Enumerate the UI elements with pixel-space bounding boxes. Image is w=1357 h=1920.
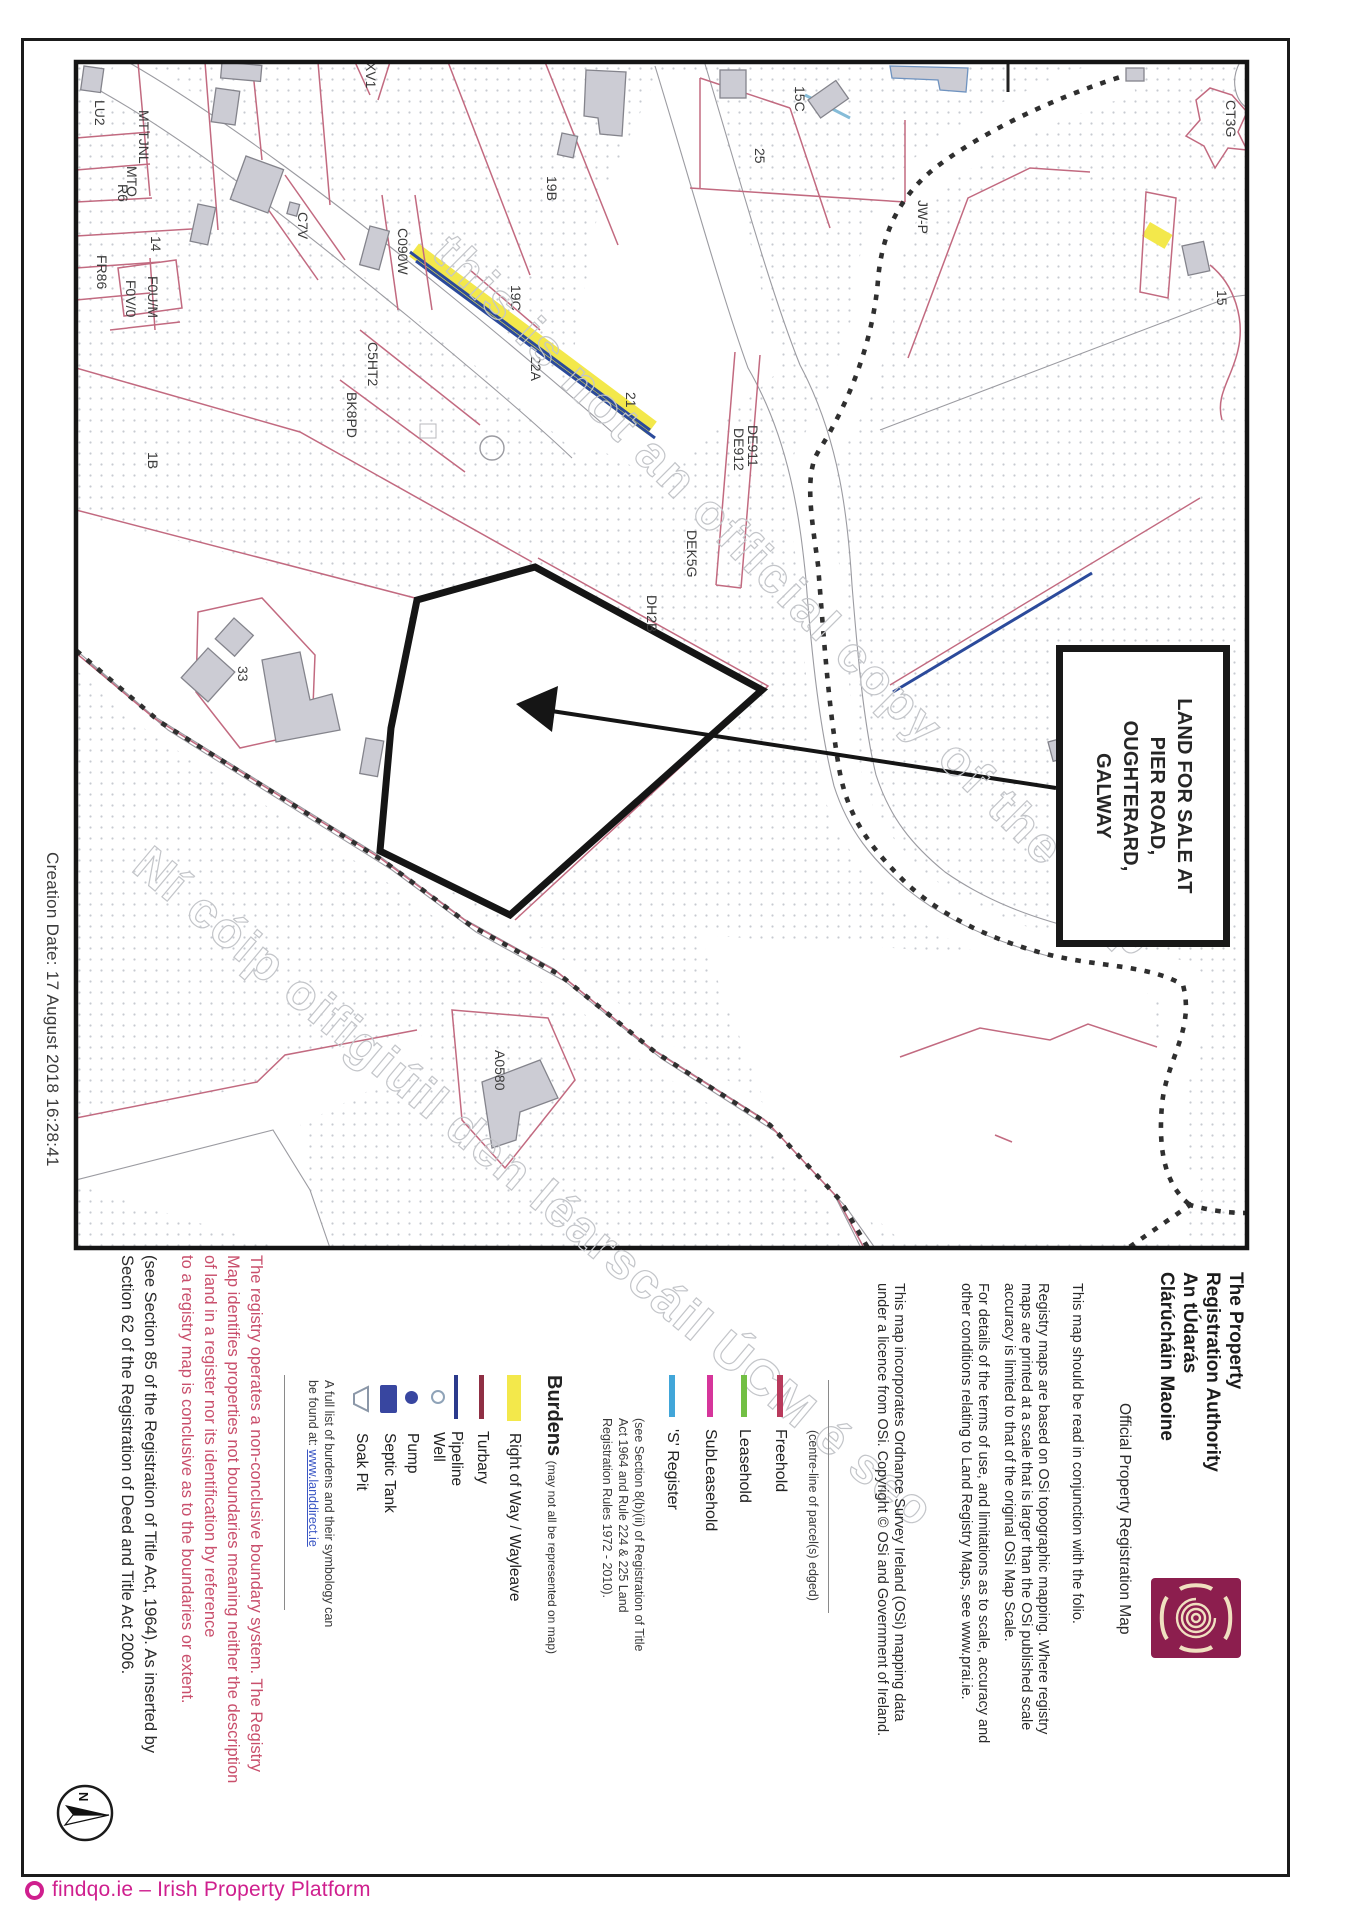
- findqo-link[interactable]: findqo.ie – Irish Property Platform: [52, 1878, 371, 1902]
- burden-row-septic-tank: Septic Tank: [380, 1385, 398, 1513]
- north-arrow-icon: N: [55, 1783, 115, 1843]
- note-terms-1: For details of the terms of use, and lim…: [974, 1283, 991, 1743]
- full-list-2: be found at:: [306, 1380, 320, 1450]
- legend-row-subleasehold: SubLeasehold: [701, 1375, 719, 1531]
- north-label: N: [76, 1792, 91, 1801]
- legal-note-2: Section 62 of the Registration of Deed a…: [115, 1255, 138, 1753]
- septic-tank-label: Septic Tank: [380, 1433, 398, 1513]
- boundary-notice-1: The registry operates a non-conclusive b…: [244, 1255, 267, 1783]
- pra-spiral-icon: [1150, 1577, 1242, 1659]
- note-registry-1: Registry maps are based on OSi topograph…: [1034, 1283, 1051, 1734]
- legal-note: (see Section 85 of the Registration of T…: [115, 1255, 161, 1753]
- legal-note-1: (see Section 85 of the Registration of T…: [138, 1255, 161, 1753]
- septic-tank-symbol: [381, 1385, 398, 1413]
- north-arrow: N: [55, 1783, 115, 1843]
- right-of-way-swatch: [507, 1375, 521, 1421]
- legend-section-note: (see Section 8(b)(ii) of Registration of…: [599, 1418, 647, 1651]
- scanned-map-page: LU2 MTTJNL MTO R6 14 FR86 F0V/0 F0U/M C7…: [0, 0, 1357, 1920]
- full-list-1: A full list of burdens and their symbolo…: [321, 1380, 337, 1627]
- turbary-swatch: [480, 1375, 485, 1419]
- boundary-notice-4: to a registry map is conclusive as to th…: [175, 1255, 198, 1783]
- well-label: Well: [429, 1432, 447, 1462]
- turbary-label: Turbary: [473, 1431, 491, 1484]
- note-folio: This map should be read in conjunction w…: [1068, 1283, 1085, 1624]
- rotated-document: Creation Date: 17 August 2018 16:28:41 L…: [0, 0, 1357, 1920]
- sale-label-box: LAND FOR SALE AT PIER ROAD, OUGHTERARD, …: [1056, 645, 1230, 947]
- authority-name-ga-1: An tÚdarás: [1178, 1272, 1201, 1472]
- legend-row-s-register: 'S' Register: [663, 1375, 681, 1510]
- soak-pit-label: Soak Pit: [352, 1433, 370, 1491]
- soak-pit-symbol: [351, 1385, 371, 1413]
- subleasehold-label: SubLeasehold: [701, 1429, 719, 1531]
- burdens-title: Burdens: [543, 1375, 565, 1456]
- note-terms-2: other conditions relating to Land Regist…: [957, 1283, 974, 1743]
- pipeline-label: Pipeline: [447, 1431, 465, 1486]
- note-osi-2: under a licence from OSi. Copyright © OS…: [873, 1283, 890, 1736]
- boundary-notice-3: of land in a register nor its identifica…: [198, 1255, 221, 1783]
- authority-name-en-2: Registration Authority: [1201, 1272, 1224, 1472]
- boundary-notice-2: Map identifies properties not boundaries…: [221, 1255, 244, 1783]
- burden-row-pipeline: Pipeline: [447, 1375, 465, 1486]
- s-register-label: 'S' Register: [663, 1429, 681, 1510]
- pump-symbol: [406, 1391, 419, 1404]
- full-list-note: A full list of burdens and their symbolo…: [305, 1380, 337, 1627]
- burden-row-turbary: Turbary: [473, 1375, 491, 1484]
- sale-line-3: OUGHTERARD,: [1118, 652, 1141, 940]
- pump-label: Pump: [403, 1433, 421, 1474]
- note-osi: This map incorporates Ordnance Survey Ir…: [873, 1283, 907, 1736]
- map-subtitle: Official Property Registration Map: [1115, 1403, 1133, 1634]
- pra-logo: [1150, 1577, 1242, 1659]
- note-registry-2: maps are printed at a scale that is larg…: [1017, 1283, 1034, 1734]
- authority-name-en-1: The Property: [1224, 1272, 1247, 1472]
- findqo-logo-icon: [25, 1881, 44, 1900]
- authority-header: The Property Registration Authority An t…: [1155, 1272, 1247, 1472]
- authority-name-ga-2: Clárúcháin Maoine: [1155, 1272, 1178, 1472]
- note-registry: Registry maps are based on OSi topograph…: [1000, 1283, 1051, 1734]
- legend-section-1: (see Section 8(b)(ii) of Registration of…: [631, 1418, 647, 1651]
- findqo-footer: findqo.ie – Irish Property Platform: [25, 1878, 371, 1902]
- s-register-swatch: [669, 1375, 675, 1417]
- sale-line-1: LAND FOR SALE AT: [1172, 652, 1195, 940]
- well-symbol: [431, 1390, 445, 1404]
- freehold-swatch: [777, 1375, 783, 1417]
- legend-section-2: Act 1964 and Rule 224 & 225 Land: [615, 1418, 631, 1651]
- sale-line-4: GALWAY: [1091, 652, 1114, 940]
- landdirect-link[interactable]: www.landdirect.ie: [306, 1450, 320, 1547]
- creation-date: Creation Date: 17 August 2018 16:28:41: [42, 852, 62, 1167]
- legend-row-freehold: Freehold: [771, 1375, 789, 1492]
- legend-row-leasehold: Leasehold: [735, 1375, 753, 1503]
- right-of-way-label: Right of Way / Wayleave: [505, 1433, 523, 1602]
- burden-row-soak-pit: Soak Pit: [351, 1385, 371, 1491]
- freehold-label: Freehold: [771, 1429, 789, 1492]
- burden-row-pump: Pump: [403, 1391, 421, 1474]
- legend-section-3: Registration Rules 1972 - 2010).: [599, 1418, 615, 1651]
- note-registry-3: accuracy is limited to that of the origi…: [1000, 1283, 1017, 1734]
- leasehold-swatch: [741, 1375, 747, 1417]
- leasehold-label: Leasehold: [735, 1429, 753, 1503]
- subleasehold-swatch: [707, 1375, 713, 1417]
- pipeline-swatch: [454, 1375, 458, 1419]
- legend-divider-bottom: [284, 1375, 285, 1610]
- note-osi-1: This map incorporates Ordnance Survey Ir…: [890, 1283, 907, 1736]
- burden-row-right-of-way: Right of Way / Wayleave: [505, 1375, 523, 1602]
- sale-line-2: PIER ROAD,: [1145, 652, 1168, 940]
- burdens-heading: Burdens (may not all be represented on m…: [542, 1375, 565, 1654]
- note-terms: For details of the terms of use, and lim…: [957, 1283, 991, 1743]
- burdens-note: (may not all be represented on map): [545, 1461, 559, 1654]
- legend-centre-note: (centre-line of parcel(s) edged): [805, 1430, 821, 1601]
- legend-divider-top: [828, 1380, 829, 1613]
- boundary-notice: The registry operates a non-conclusive b…: [175, 1255, 267, 1783]
- burden-row-well: Well: [429, 1390, 447, 1462]
